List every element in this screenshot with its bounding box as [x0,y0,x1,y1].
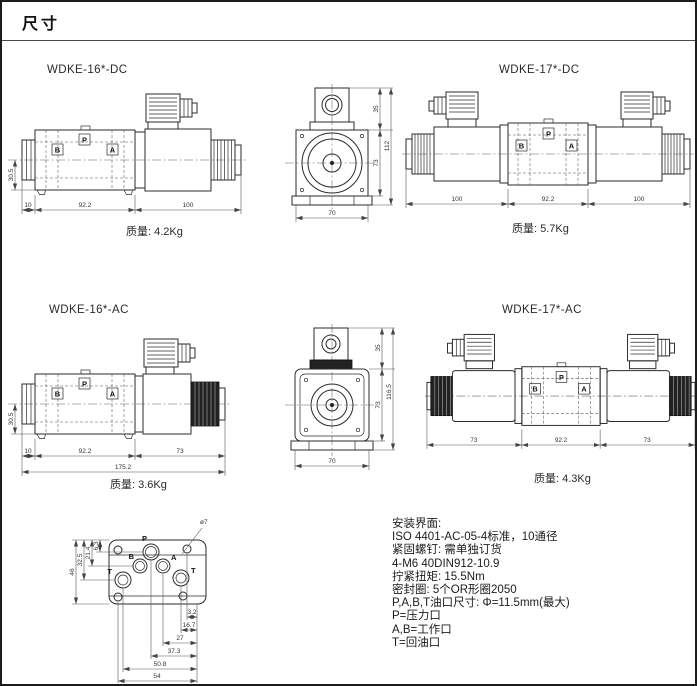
dim-cap: 10 [24,202,32,209]
mounting-dimensions-vertical: 6.3 21.4 32.5 46 [69,540,143,604]
port-label-a: A [581,385,587,394]
end-view-outline [285,324,380,456]
wdke16dc-drawing: B P A 30.5 10 92.2 100 [8,82,258,242]
port-markers: B P A [52,134,118,155]
dim-h-6: 54 [153,673,161,680]
header-divider [2,40,697,41]
dim-v-1: 6.3 [93,541,100,550]
port-label-p: P [546,130,551,139]
wdke17ac-drawing: B P A 73 92.2 73 [425,324,697,474]
wdke17dc-drawing: B P A 100 92.2 100 [402,82,697,232]
port-label-p: P [559,373,564,382]
spec-line-interface: 安装界面: [392,518,692,531]
port-markers: B P A [516,128,577,151]
hole-diameter-label: ø7 [200,519,208,526]
spec-line-p-def: P=压力口 [392,610,692,623]
dim-right: 73 [644,437,652,444]
spec-line-screws: 紧固螺钉: 需单独订货 [392,544,692,557]
dimensions: 70 35 73 116.5 [295,328,395,470]
spec-line-standard: ISO 4401-AC-05-4标准，10通径 [392,531,692,544]
dim-v-3: 32.5 [77,553,84,566]
port-label-t-right: T [191,566,196,575]
port-label-a: A [110,146,116,155]
dim-width: 70 [328,458,336,465]
installation-specs: 安装界面: ISO 4401-AC-05-4标准，10通径 紧固螺钉: 需单独订… [392,518,692,650]
drawing-title-wdke16ac: WDKE-16*-AC [49,304,129,316]
valve-outline [8,370,232,439]
din-connector-left [448,334,495,368]
dim-left: 73 [470,437,478,444]
port-label-b: B [519,142,525,151]
dim-solenoid: 73 [176,448,184,455]
dimensions: 100 92.2 100 [406,169,690,208]
mounting-dimensions-horizontal: 3.2 16.7 27 37.3 50.8 54 [118,554,197,683]
port-label-a: A [110,390,116,399]
mounting-interface-drawing: P B A T T ø7 6.3 21.4 32.5 46 [34,510,249,685]
dim-h-5: 50.8 [154,661,167,668]
dim-body: 92.2 [542,196,555,203]
spec-line-t-def: T=回油口 [392,637,692,650]
dimensions: 70 35 73 112 [296,88,393,222]
dim-cap: 10 [24,448,32,455]
dim-height: 30.5 [8,412,15,425]
din-connector-right [621,92,670,127]
spec-line-ab-def: A,B=工作口 [392,624,692,637]
dim-height: 30.5 [8,168,15,181]
spec-line-screw-type: 4-M6 40DIN912-10.9 [392,558,692,571]
port-label-t-left: T [107,567,112,576]
dim-v-4: 46 [69,568,76,576]
port-markers: B P A [52,378,118,399]
end-view-dc-drawing: 70 35 73 112 [285,82,400,232]
din-connector [144,339,195,374]
spec-line-port-size: P,A,B,T油口尺寸: Φ=11.5mm(最大) [392,597,692,610]
dim-left: 100 [452,196,463,203]
port-markers: B P A [530,372,590,395]
dim-solenoid: 100 [183,202,194,209]
port-label-b: B [55,390,61,399]
drawing-title-wdke16dc: WDKE-16*-DC [47,64,127,76]
dim-body: 92.2 [555,437,568,444]
dim-body: 92.2 [79,202,92,209]
dim-right: 100 [634,196,645,203]
end-view-outline [285,84,377,210]
dim-total: 112 [384,140,391,151]
dim-total: 116.5 [386,384,393,400]
drawing-title-wdke17dc: WDKE-17*-DC [499,64,579,76]
din-connector-right [628,334,675,368]
end-view-ac-drawing: 70 35 73 116.5 [285,324,400,482]
dim-h-1: 3.2 [187,609,196,616]
dim-connector: 35 [373,105,380,113]
spec-line-seals: 密封圈: 5个OR形圈2050 [392,584,692,597]
valve-outline [8,126,248,195]
dim-body: 73 [375,401,382,409]
dim-h-3: 27 [176,635,184,642]
port-label-p: P [142,534,147,543]
spec-line-torque: 拧紧扭矩: 15.5Nm [392,571,692,584]
dimensions: 73 92.2 73 [427,410,695,449]
page-title: 尺寸 [22,10,60,34]
port-label-a: A [171,553,177,562]
port-label-p: P [82,136,87,145]
port-label-b: B [532,385,537,394]
dim-connector: 35 [375,344,382,352]
wdke16ac-drawing: B P A 30.5 10 92.2 73 175.2 [8,324,258,492]
dim-body: 92.2 [79,448,92,455]
dim-h-2: 16.7 [183,622,196,629]
dim-body: 73 [373,159,380,167]
dimensions: 30.5 10 92.2 100 [8,160,241,214]
port-label-b: B [129,552,135,561]
din-connector-left [429,92,478,127]
dim-width: 70 [328,210,336,217]
port-label-p: P [82,380,87,389]
dim-h-4: 37.3 [168,648,181,655]
port-label-a: A [569,142,575,151]
dim-v-2: 21.4 [85,546,92,559]
dim-total: 175.2 [115,464,132,471]
din-connector [146,94,197,129]
datasheet-page: 尺寸 WDKE-16*-DC WDKE-17*-DC WDKE-16*-AC W… [0,0,697,686]
port-label-b: B [55,146,61,155]
drawing-title-wdke17ac: WDKE-17*-AC [502,304,582,316]
